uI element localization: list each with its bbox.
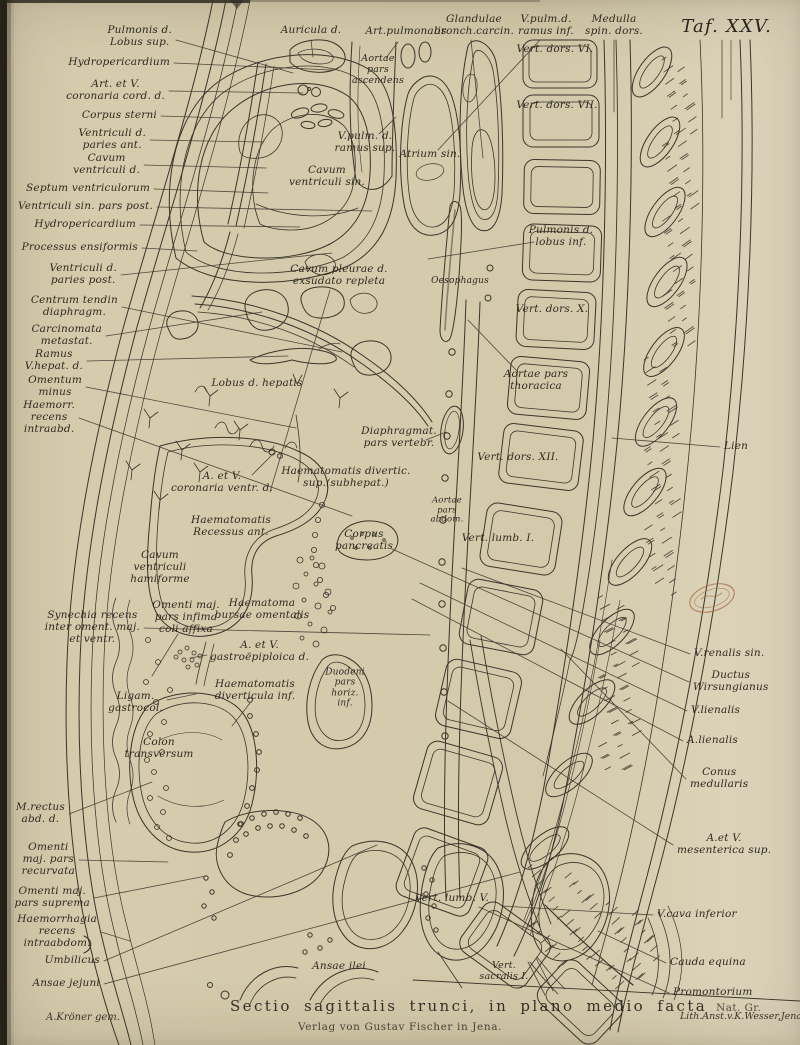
anatomy-label: Cavum pleurae d. exsudato repleta xyxy=(290,264,387,288)
anatomy-label: Auricula d. xyxy=(281,25,342,37)
anatomy-label: Pulmonis d. lobus inf. xyxy=(529,225,594,249)
anatomy-label: Ansae jejuni xyxy=(32,978,100,990)
anatomy-label: Oesophagus xyxy=(431,276,489,286)
anatomy-label: V.cava inferior xyxy=(657,909,737,921)
anatomy-label: Haemorrhagia recens intraabdom. xyxy=(17,914,97,950)
anatomical-plate: Pulmonis d. Lobus sup.Auricula d.Art.pul… xyxy=(0,0,800,1045)
anatomy-label: A. et V. coronaria ventr. d. xyxy=(171,471,273,495)
anatomy-label: Ductus Wirsungianus xyxy=(693,670,769,694)
anatomy-label: Hydropericardium xyxy=(34,219,136,231)
anatomy-label: Conus medullaris xyxy=(690,767,748,791)
anatomy-label: Omenti maj. pars suprema xyxy=(15,886,90,910)
anatomy-label: Art. et V. coronaria cord. d. xyxy=(66,79,165,103)
anatomy-label: Processus ensiformis xyxy=(22,242,138,254)
caption-title: Sectio sagittalis trunci, in plano medio… xyxy=(230,997,707,1015)
anatomy-label: Cavum ventriculi sin. xyxy=(289,165,365,189)
anatomy-label: Vert. dors. XII. xyxy=(477,452,558,464)
anatomy-label: Haematomatis diverticula inf. xyxy=(215,679,296,703)
anatomy-label: V.lienalis xyxy=(691,705,740,717)
anatomy-label: A. et V. gastroëpiploica d. xyxy=(210,640,309,664)
anatomy-label: Umbilicus xyxy=(45,955,100,967)
anatomy-label: Glandulae bronch.carcin. xyxy=(434,14,514,38)
anatomy-label: Omenti maj. pars infima coli affixa xyxy=(152,600,219,636)
anatomy-label: Hydropericardium xyxy=(68,57,170,69)
anatomy-label: Haematoma bursae omentalis xyxy=(215,598,310,622)
publisher-line: Verlag von Gustav Fischer in Jena. xyxy=(0,1021,800,1033)
label-layer: Pulmonis d. Lobus sup.Auricula d.Art.pul… xyxy=(0,0,800,1045)
anatomy-label: Cauda equina xyxy=(670,957,746,969)
anatomy-label: Vert. dors. VI. xyxy=(517,44,594,56)
anatomy-label: Vert. sacralis I. xyxy=(479,961,528,983)
anatomy-label: Vert. dors. X. xyxy=(516,304,589,316)
anatomy-label: Corpus sterni xyxy=(82,110,157,122)
anatomy-label: Haematomatis divertic. sup.(subhepat.) xyxy=(281,466,410,490)
anatomy-label: Synechia recens inter oment. maj. et ven… xyxy=(45,610,140,646)
anatomy-label: Lien xyxy=(724,441,748,453)
anatomy-label: V.pulm.d. ramus inf. xyxy=(518,14,574,38)
anatomy-label: A.lienalis xyxy=(687,735,738,747)
anatomy-label: Atrium sin. xyxy=(399,149,460,161)
anatomy-label: Vert. dors. VII. xyxy=(516,100,597,112)
anatomy-label: Ventriculi d. paries ant. xyxy=(78,128,146,152)
anatomy-label: Pulmonis d. Lobus sup. xyxy=(107,25,172,49)
anatomy-label: V.renalis sin. xyxy=(694,648,764,660)
anatomy-label: Aortae pars ascendens xyxy=(352,54,404,86)
anatomy-label: Corpus pancreatis xyxy=(335,529,393,553)
anatomy-label: Cavum ventriculi d. xyxy=(73,153,140,177)
anatomy-label: Haemorr. recens intraabd. xyxy=(23,400,75,436)
anatomy-label: M.rectus abd. d. xyxy=(16,802,65,826)
anatomy-label: Septum ventriculorum xyxy=(26,183,150,195)
plate-title: Taf. XXV. xyxy=(681,16,772,37)
anatomy-label: Medulla spin. dors. xyxy=(585,14,643,38)
anatomy-label: V.pulm. d. ramus sup. xyxy=(335,131,396,155)
anatomy-label: Ventriculi d. paries post. xyxy=(49,263,117,287)
anatomy-label: Carcinomata metastat. xyxy=(31,324,102,348)
anatomy-label: Lobus d. hepatis xyxy=(211,378,302,390)
anatomy-label: Colon transversum xyxy=(124,737,193,761)
anatomy-label: Omentum minus xyxy=(28,375,82,399)
anatomy-label: Aortae pars abdom. xyxy=(430,496,463,525)
anatomy-label: Vert. lumb. I. xyxy=(462,533,535,545)
anatomy-label: Centrum tendin diaphragm. xyxy=(31,295,118,319)
lithographer-credit: Lith.Anst.v.K.Wesser,Jena. xyxy=(680,1011,800,1022)
anatomy-label: Ligam. gastrocol. xyxy=(108,691,163,715)
anatomy-label: Ansae ilei xyxy=(312,961,366,973)
anatomy-label: Duodeni pars horiz. inf. xyxy=(325,668,365,709)
anatomy-label: Aortae pars thoracica xyxy=(504,369,569,393)
anatomy-label: A.et V. mesenterica sup. xyxy=(677,833,771,857)
artist-credit: A.Kröner gem. xyxy=(46,1012,120,1023)
anatomy-label: Ventriculi sin. pars post. xyxy=(18,201,153,213)
anatomy-label: Ramus V.hepat. d. xyxy=(25,349,83,373)
anatomy-label: Vert. lumb. V. xyxy=(415,893,489,905)
anatomy-label: Diaphragmat. pars vertebr. xyxy=(361,426,437,450)
anatomy-label: Omenti maj. pars recurvata xyxy=(22,842,75,878)
anatomy-label: Cavum ventriculi hamiforme xyxy=(130,550,190,586)
anatomy-label: Haematomatis Recessus ant. xyxy=(191,515,271,539)
